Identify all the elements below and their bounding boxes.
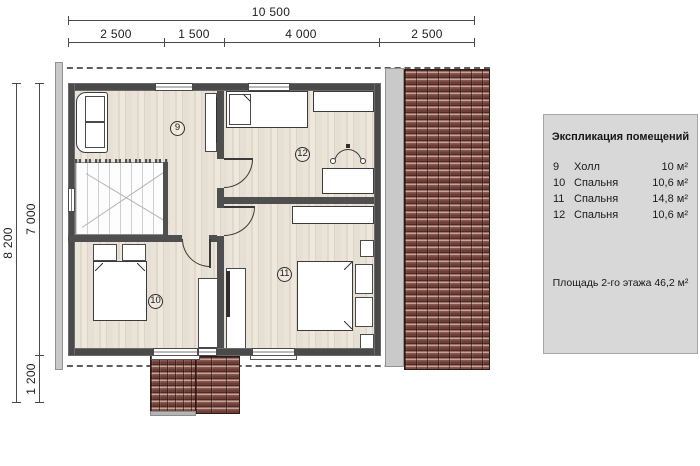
window-top-room12: [248, 83, 290, 91]
dimension-tick: [68, 16, 69, 25]
dimension-left-total-label: 8 200: [1, 218, 15, 268]
legend-footer-total-area: Площадь 2-го этажа 46,2 м²: [544, 277, 697, 289]
legend-room-name: Спальня: [574, 193, 618, 205]
desk-room12: [322, 168, 374, 194]
dimension-top-seg2-label: 1 500: [154, 27, 234, 41]
legend-title: Экспликация помещений: [544, 131, 697, 143]
dimension-tick: [224, 38, 225, 47]
pillow: [122, 244, 146, 261]
eaves-strip-right: [385, 68, 404, 367]
blanket-fold: [137, 263, 145, 271]
wall-exterior-right: [374, 83, 381, 356]
sofa-cushion: [85, 96, 105, 122]
legend-row: 11 Спальня 14,8 м²: [544, 193, 697, 207]
legend-room-number: 10: [553, 177, 571, 189]
window-bottom-center: [198, 348, 217, 356]
legend-panel: Экспликация помещений 9 Холл 10 м² 10 Сп…: [543, 114, 698, 354]
pillow: [93, 244, 117, 261]
wall-interior-center-lower: [217, 236, 224, 348]
dimension-tick: [35, 83, 44, 84]
dimension-top-seg1-label: 2 500: [76, 27, 156, 41]
shelf-room11: [292, 206, 374, 224]
dimension-left-total-line: [16, 83, 17, 403]
dimension-tick: [12, 402, 21, 403]
dimension-tick: [379, 38, 380, 47]
wall-exterior-top: [68, 83, 381, 91]
window-sill: [151, 355, 200, 360]
room-label-bedroom-10: 10: [148, 294, 163, 309]
legend-room-area: 14,8 м²: [652, 193, 688, 205]
blanket-fold: [344, 321, 352, 329]
dimension-top-total-label: 10 500: [221, 5, 321, 19]
blanket-fold: [95, 263, 103, 271]
dimension-tick: [164, 38, 165, 47]
wall-exterior-left: [68, 83, 75, 356]
legend-row: 12 Спальня 10,6 м²: [544, 209, 697, 223]
porch-tiles-left: [150, 356, 196, 415]
wall-interior-room12-room11: [224, 197, 374, 204]
wall-staircase-right: [163, 162, 168, 235]
room-label-bedroom-11: 11: [277, 267, 292, 282]
dimension-tick: [474, 38, 475, 47]
blanket-fold: [344, 262, 352, 270]
legend-row: 10 Спальня 10,6 м²: [544, 177, 697, 191]
dimension-top-seg4-label: 2 500: [387, 27, 467, 41]
legend-room-area: 10,6 м²: [652, 209, 688, 221]
dimension-tick: [35, 355, 44, 356]
wardrobe-room12: [313, 91, 374, 112]
closet-door-panel: [226, 271, 230, 317]
chair-armrest: [360, 158, 366, 164]
staircase: [75, 162, 168, 235]
porch-edge-strip: [150, 411, 196, 416]
legend-room-number: 11: [553, 193, 571, 205]
dimension-left-seg1-label: 7 000: [24, 194, 38, 244]
dimension-left-seg2-label: 1 200: [24, 354, 38, 404]
room-label-hall-9: 9: [170, 121, 185, 136]
legend-room-name: Спальня: [574, 209, 618, 221]
sofa-cushion: [85, 122, 105, 148]
legend-room-number: 9: [553, 161, 571, 173]
dimension-tick: [12, 83, 21, 84]
chair-knob: [346, 144, 350, 148]
eaves-strip-left: [55, 62, 63, 370]
porch-tiles-right: [195, 356, 240, 414]
roof-tiles-right: [404, 69, 490, 370]
blanket-fold: [243, 94, 251, 102]
legend-room-area: 10 м²: [661, 161, 688, 173]
window-top-hall: [155, 83, 193, 91]
wall-interior-hall-room10: [68, 235, 182, 242]
legend-row: 9 Холл 10 м²: [544, 161, 697, 175]
floor-plan-page: 9 10 11 12 10 500 2 500 1 500 4 000 2 50…: [0, 0, 700, 466]
chair-armrest: [330, 158, 336, 164]
legend-room-name: Спальня: [574, 177, 618, 189]
window-sill: [250, 355, 297, 360]
dimension-top-segments-line: [68, 42, 475, 43]
dimension-top-total-line: [68, 20, 475, 21]
wall-interior-center-upper: [217, 91, 224, 159]
legend-room-name: Холл: [574, 161, 600, 173]
legend-room-area: 10,6 м²: [652, 177, 688, 189]
pillow: [355, 264, 373, 294]
nightstand: [360, 240, 374, 257]
dimension-tick: [474, 16, 475, 25]
wall-interior-center-middle: [217, 188, 224, 208]
dimension-tick: [35, 402, 44, 403]
legend-room-number: 12: [553, 209, 571, 221]
window-left-staircase: [68, 188, 75, 212]
staircase-railing: [75, 159, 168, 163]
wall-exterior-bottom: [68, 348, 381, 356]
dimension-top-seg3-label: 4 000: [261, 27, 341, 41]
pillow: [355, 297, 373, 327]
room-label-bedroom-12: 12: [295, 147, 310, 162]
sofa: [76, 92, 108, 153]
dimension-tick: [68, 38, 69, 47]
